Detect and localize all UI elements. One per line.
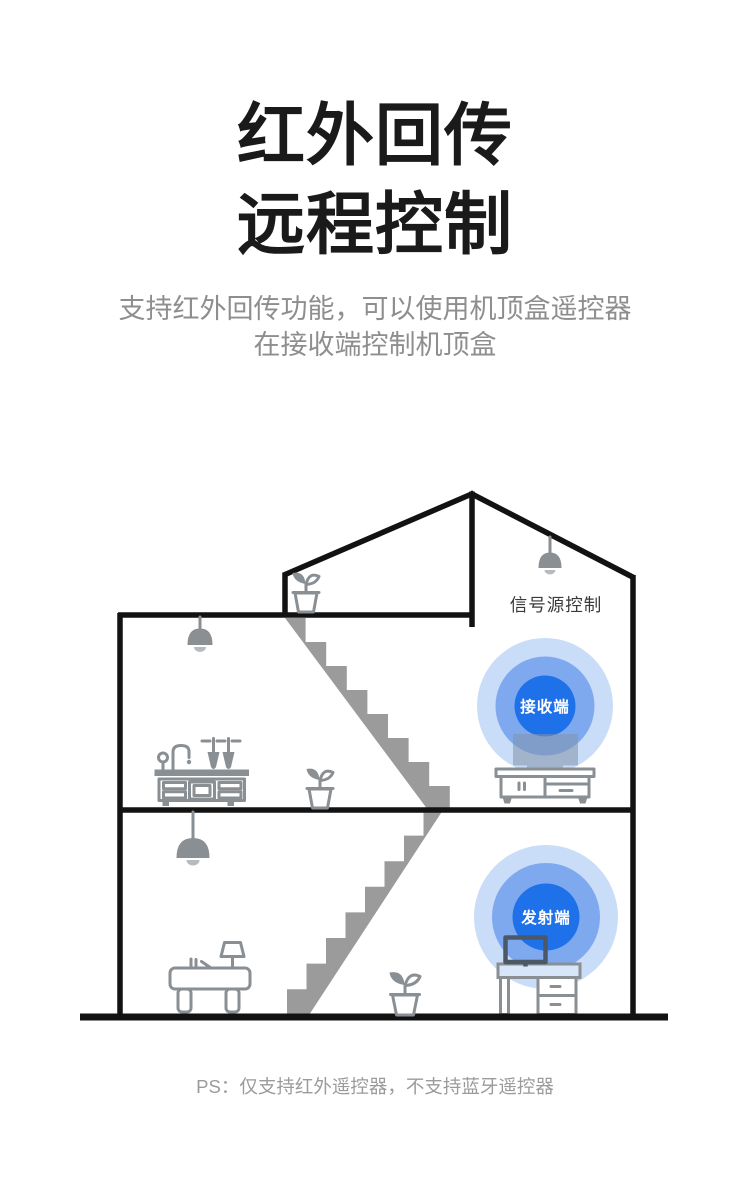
footer-note: PS：仅支持红外遥控器，不支持蓝牙遥控器 bbox=[0, 1073, 750, 1099]
transmitter-label: 发射端 bbox=[520, 908, 571, 927]
pendant-lamp-icon bbox=[188, 617, 213, 652]
pendant-lamp-icon bbox=[539, 537, 562, 575]
stairs-lower-icon bbox=[287, 810, 443, 1015]
pendant-lamp-icon bbox=[177, 812, 210, 866]
stairs-upper-icon bbox=[285, 618, 450, 810]
tv-icon bbox=[513, 734, 578, 770]
computer-desk-icon bbox=[498, 964, 580, 1015]
desk-with-lamp-icon bbox=[170, 943, 250, 1013]
potted-plant-icon bbox=[390, 972, 421, 1015]
receiver-label: 接收端 bbox=[520, 697, 570, 716]
kitchen-sink-cabinet-icon bbox=[155, 739, 250, 807]
potted-plant-icon bbox=[293, 573, 320, 612]
tv-stand-icon bbox=[496, 769, 594, 804]
left-roof bbox=[284, 493, 474, 575]
product-infographic-page: 红外回传 远程控制 支持红外回传功能，可以使用机顶盒遥控器 在接收端控制机顶盒 … bbox=[0, 0, 750, 1179]
signal-source-label: 信号源控制 bbox=[510, 595, 603, 615]
potted-plant-icon bbox=[307, 769, 334, 808]
house-cross-section-diagram: 接收端 发射端 bbox=[0, 0, 750, 1179]
